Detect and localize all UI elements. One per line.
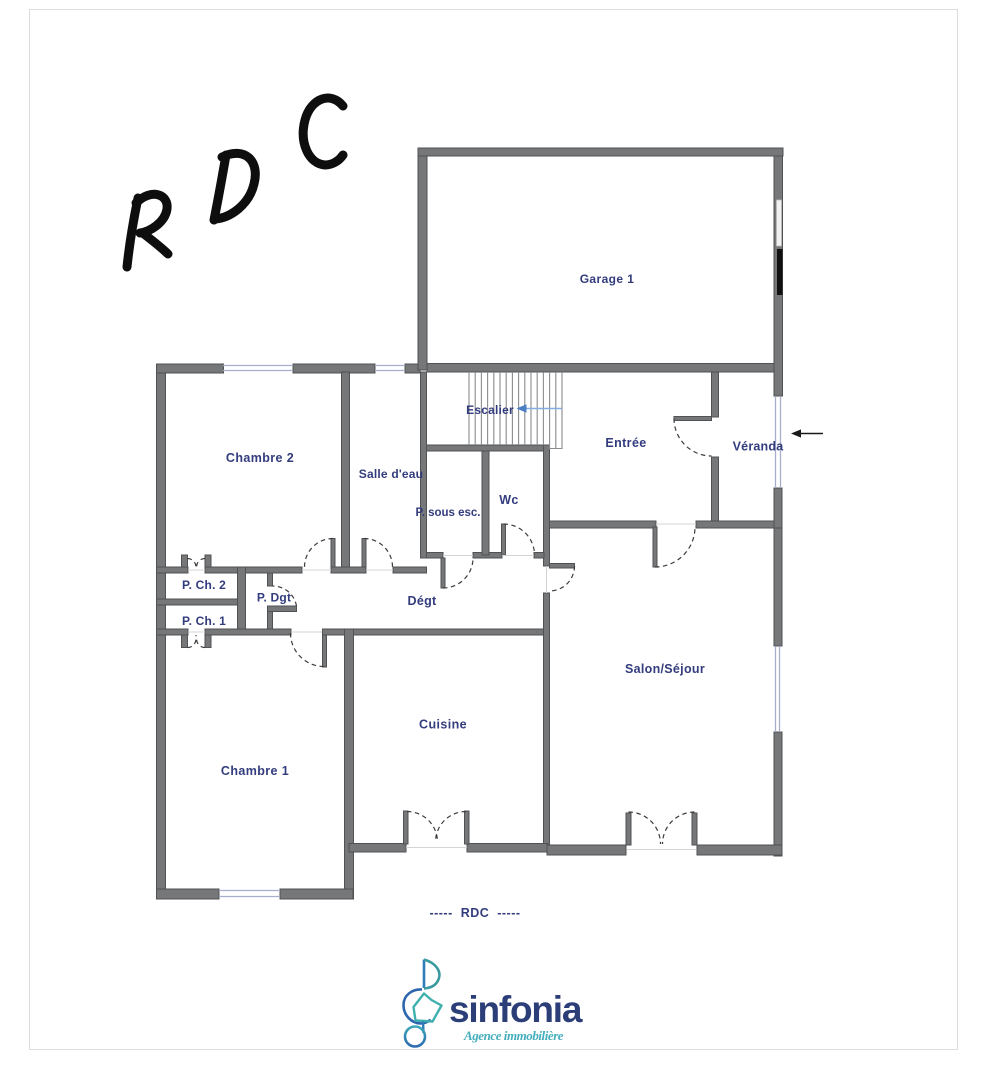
svg-text:sinfonia: sinfonia [449,989,583,1030]
svg-text:P. sous esc.: P. sous esc. [416,507,481,519]
svg-text:P. Ch. 2: P. Ch. 2 [182,578,226,592]
svg-text:----- RDC -----: ----- RDC ----- [429,906,520,920]
svg-text:Entrée: Entrée [605,436,646,450]
svg-text:Dégt: Dégt [408,594,438,608]
svg-text:Salon/Séjour: Salon/Séjour [625,662,705,676]
svg-text:Garage 1: Garage 1 [580,272,635,286]
svg-text:Agence immobilière: Agence immobilière [463,1028,564,1043]
svg-text:Wc: Wc [499,493,519,507]
svg-text:Véranda: Véranda [733,440,785,454]
svg-text:Salle d'eau: Salle d'eau [359,467,423,481]
svg-text:P. Ch. 1: P. Ch. 1 [182,614,226,628]
svg-text:Cuisine: Cuisine [419,718,467,732]
svg-text:Chambre 1: Chambre 1 [221,764,289,778]
svg-text:Chambre 2: Chambre 2 [226,451,294,465]
svg-text:P. Dgt: P. Dgt [257,591,291,605]
svg-text:Escalier: Escalier [466,403,514,417]
